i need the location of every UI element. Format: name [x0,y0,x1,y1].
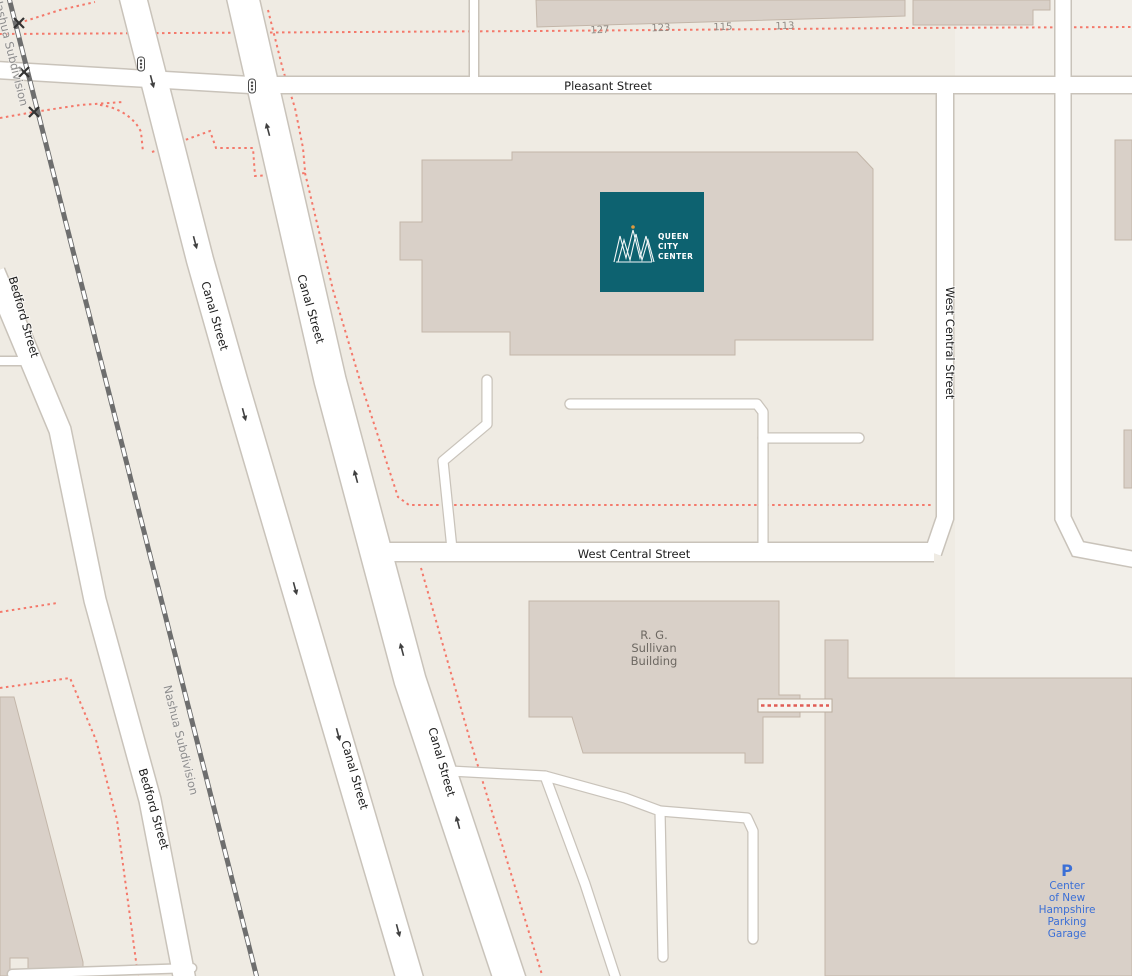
crown-accent-dot [631,225,635,229]
parking-label-line4: Parking [1048,916,1087,928]
map-canvas[interactable]: QUEEN CITY CENTER Pleasant Street West C… [0,0,1132,976]
traffic-signal-icon [249,79,256,93]
street-label-west-central-horizontal: West Central Street [578,547,691,561]
parking-label-line3: Hampshire [1039,904,1096,916]
house-number-123: 123 [651,23,670,35]
sullivan-label-line3: Building [631,654,678,668]
street-label-west-central-vertical: West Central Street [943,287,957,400]
parking-label-line2: of New [1049,892,1086,904]
parking-label-line1: Center [1049,880,1085,892]
parking-label-line5: Garage [1048,928,1086,940]
traffic-signal-icon [138,57,145,71]
building-top-right [913,0,1050,25]
logo-panel [600,192,704,292]
street-label-pleasant: Pleasant Street [564,79,652,93]
house-number-115: 115 [713,22,732,34]
footbridge [758,699,832,712]
queen-city-center-logo: QUEEN CITY CENTER [600,192,704,292]
sullivan-label-line1: R. G. [640,628,667,642]
sullivan-label-line2: Sullivan [631,641,676,655]
logo-text-line3: CENTER [658,252,693,261]
logo-text-line1: QUEEN [658,232,689,241]
building-east-sliver-1 [1115,140,1132,240]
logo-text-line2: CITY [658,242,679,251]
east-block-tint [955,0,1132,680]
parking-icon: P [1061,861,1073,880]
house-number-113: 113 [775,21,794,33]
house-number-127: 127 [590,25,609,37]
map-viewport[interactable]: QUEEN CITY CENTER Pleasant Street West C… [0,0,1132,976]
building-east-sliver-2 [1124,430,1132,488]
